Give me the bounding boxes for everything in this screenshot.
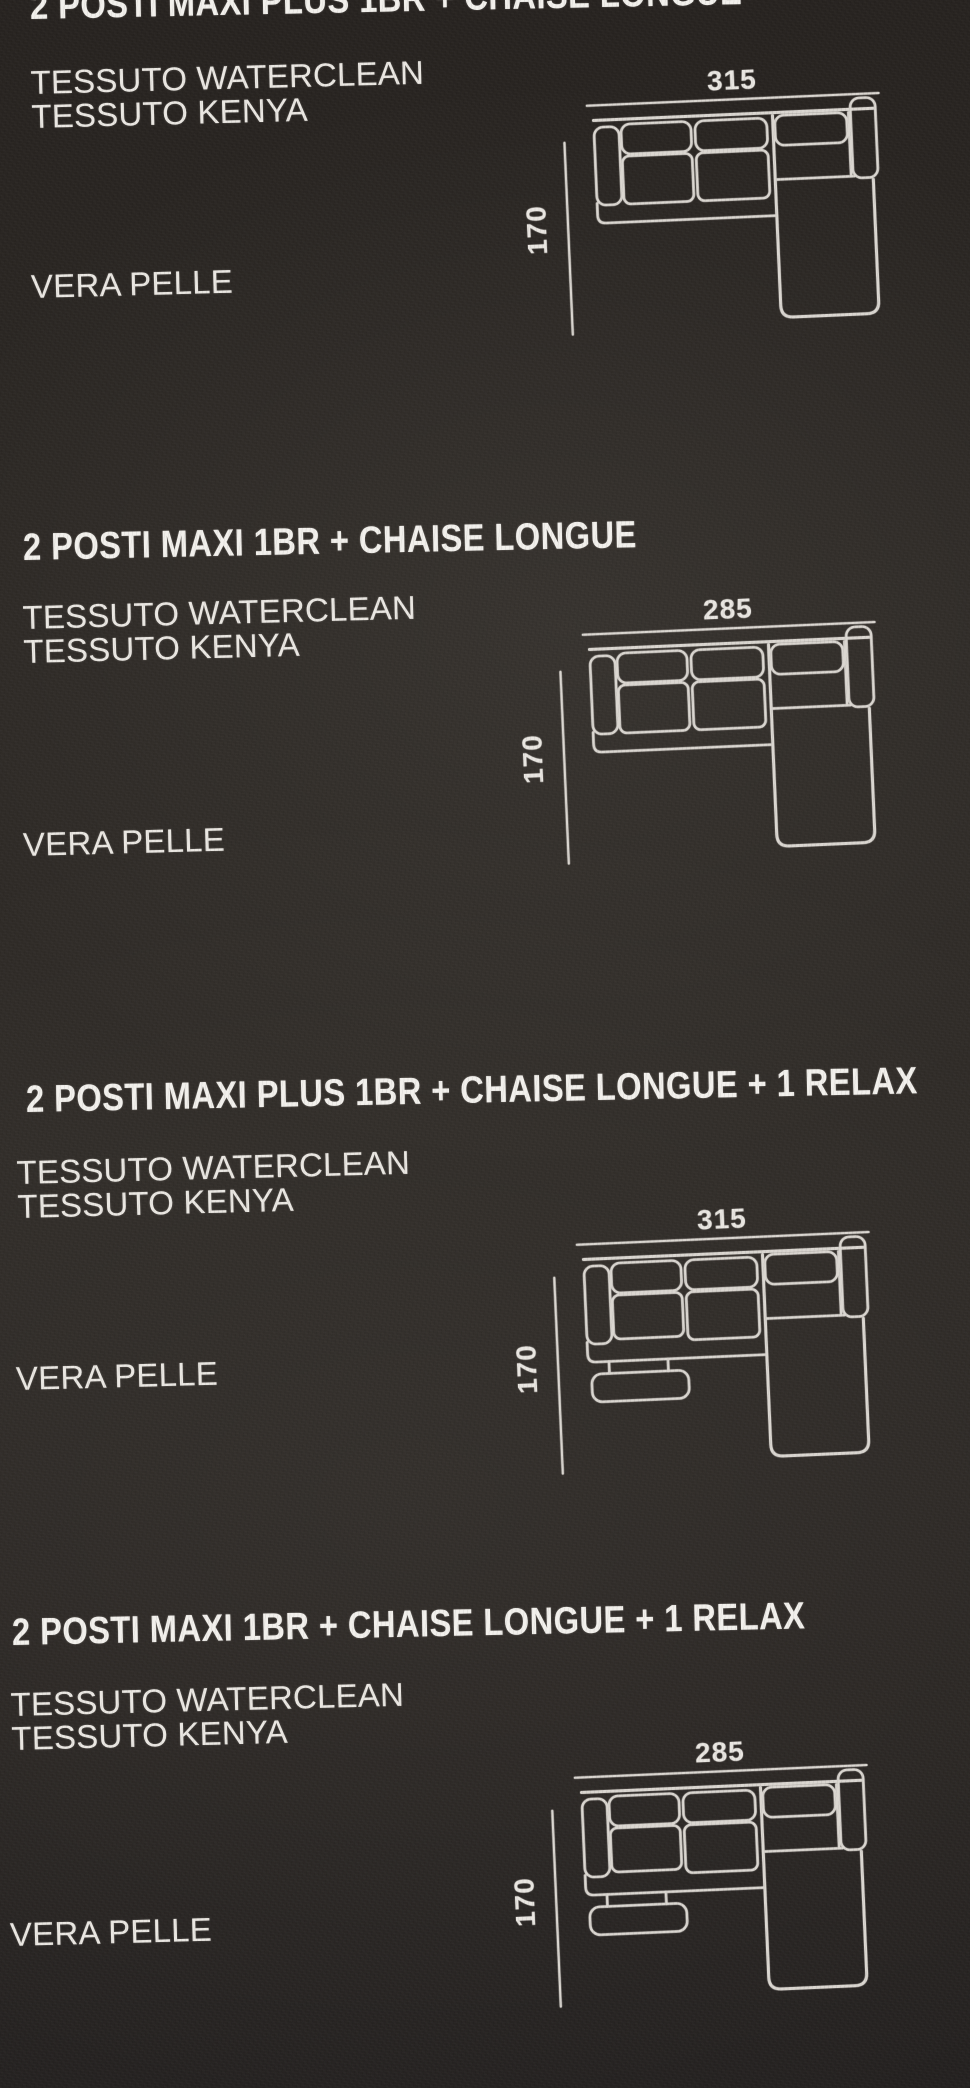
depth-dimension-label: 170	[508, 1877, 541, 1928]
leather-option: VERA PELLE	[10, 1913, 213, 1952]
fabric-options: TESSUTO WATERCLEAN TESSUTO KENYA	[10, 1678, 405, 1756]
width-dimension-label: 285	[694, 1735, 745, 1768]
fabric-option: TESSUTO KENYA	[11, 1712, 405, 1756]
product-section-4: 2 POSTI MAXI 1BR + CHAISE LONGUE + 1 REL…	[0, 0, 970, 2088]
product-title: 2 POSTI MAXI 1BR + CHAISE LONGUE + 1 REL…	[12, 1595, 806, 1655]
sofa-top-view-diagram: 285 170	[501, 1716, 903, 2023]
catalog-page: 2 POSTI MAXI PLUS 1BR + CHAISE LONGUE TE…	[0, 0, 970, 2088]
